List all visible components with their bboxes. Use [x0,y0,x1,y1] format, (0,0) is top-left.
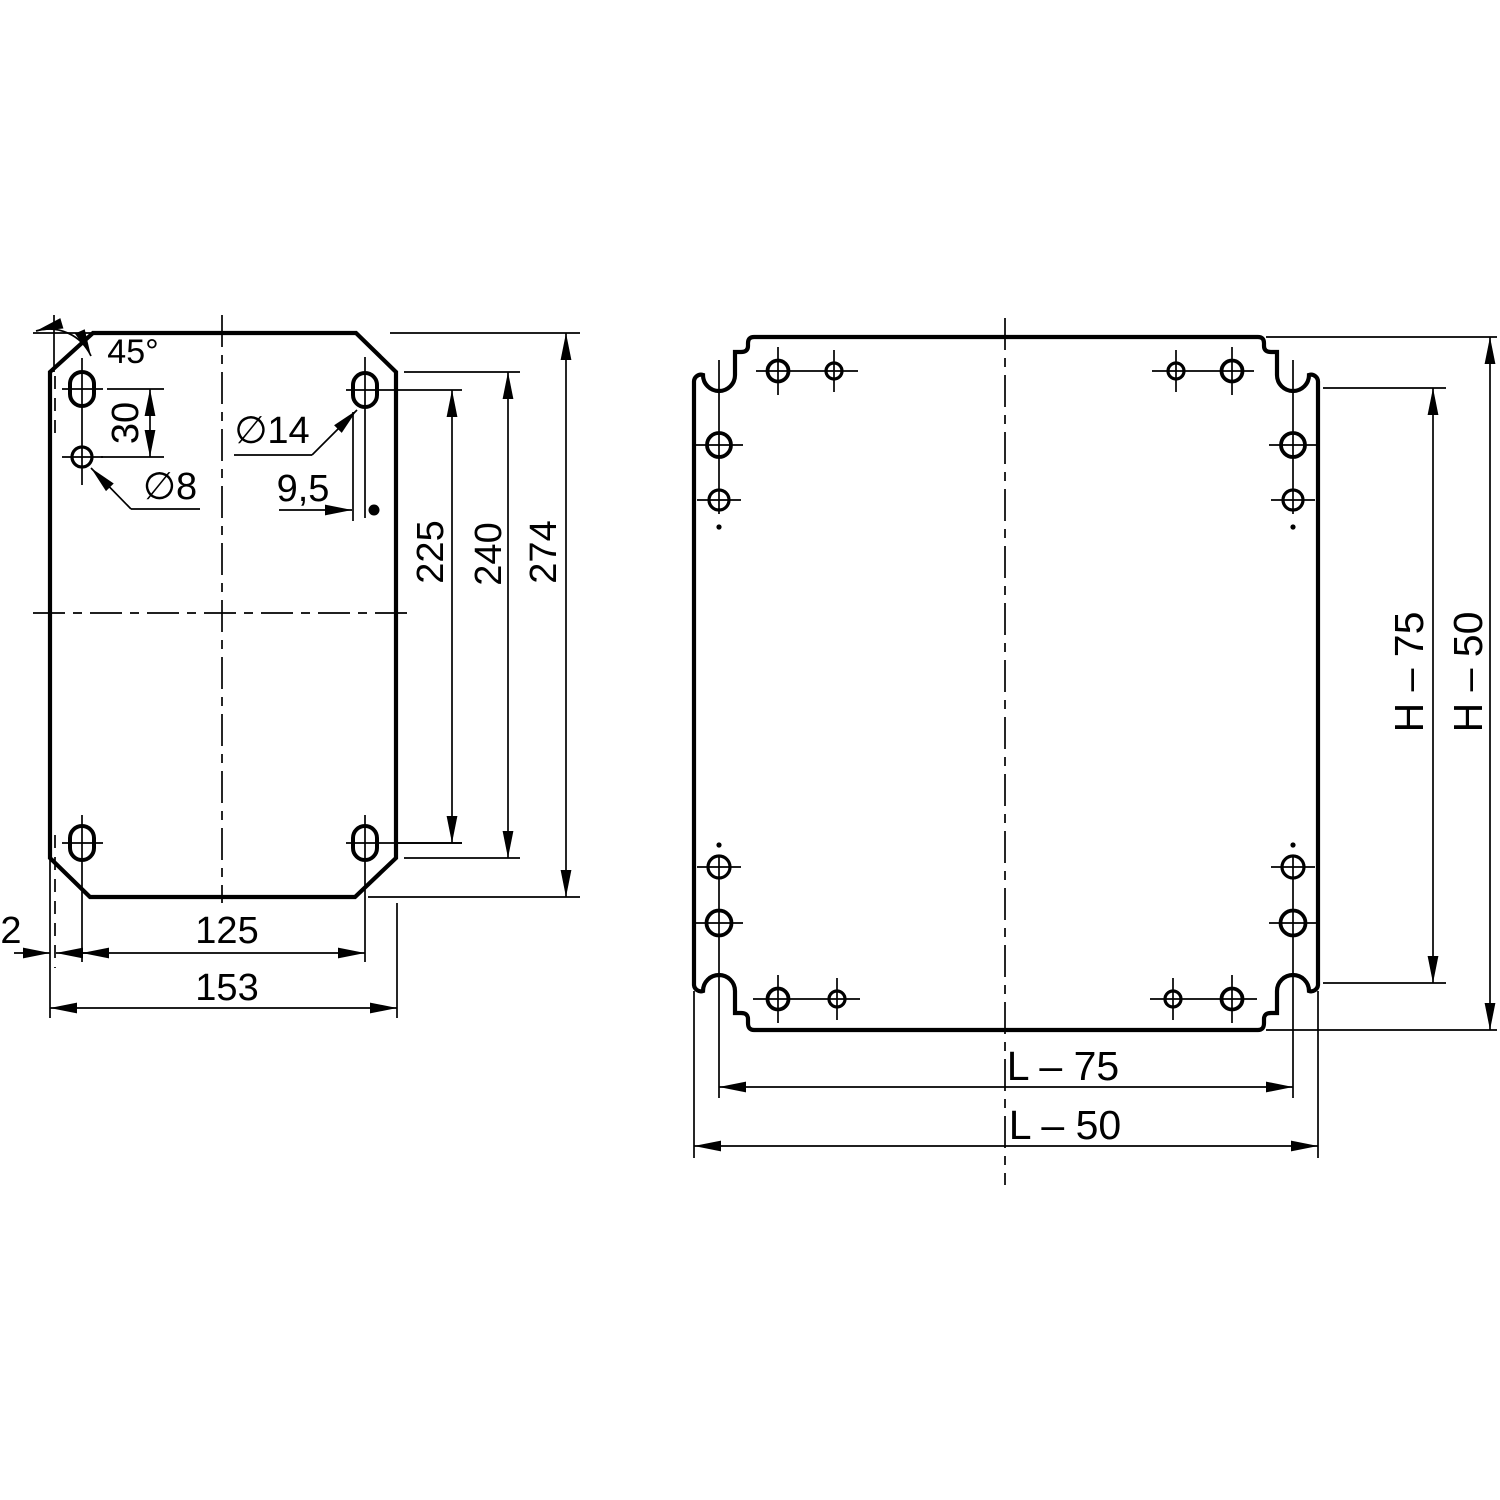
right-plate-view: H – 75 H – 50 L – 75 L – 50 [694,318,1497,1185]
dim-274-label: 274 [523,520,565,583]
keyhole-centerlines [719,360,1293,1098]
left-plate-outline [50,333,396,897]
leader-d8: ∅8 [91,466,200,509]
corner-axis-holes [707,433,1306,936]
dim-h50-label: H – 50 [1445,612,1491,733]
dim-bottom-stack: 2 125 153 [0,835,397,1018]
dim-h50: H – 50 [1266,337,1497,1030]
dim-9-5-label: 9,5 [277,468,330,510]
dim-l75: L – 75 [719,1043,1293,1089]
dim-153-label: 153 [195,967,258,1009]
dim-l50-label: L – 50 [1009,1102,1121,1148]
dim-right-stack: 225 240 274 [368,333,580,897]
leader-d14: ∅14 [234,410,357,455]
dim-h75-label: H – 75 [1386,612,1432,733]
dim-125-label: 125 [195,910,258,952]
centerline-dot [1290,842,1295,847]
drawing-page: 45° 30 ∅8 ∅14 9,5 [0,0,1500,1500]
dim-l75-label: L – 75 [1007,1043,1119,1089]
dim-30-label: 30 [105,402,147,444]
d14-label: ∅14 [234,410,309,452]
centerline-dot [716,524,721,529]
d8-label: ∅8 [143,466,197,508]
dim-240-label: 240 [468,522,510,585]
left-plate-view: 45° 30 ∅8 ∅14 9,5 [0,315,580,1018]
dim-225-label: 225 [410,520,452,583]
centerline-dot [716,842,721,847]
mounting-plate-technical-drawing: 45° 30 ∅8 ∅14 9,5 [0,0,1500,1500]
right-plate-outline [694,337,1318,1030]
dim-30: 30 [101,389,164,457]
centerline-dot [1290,524,1295,529]
angle-label: 45° [107,333,158,371]
corner-axis-hole-crosses [695,445,1317,923]
dim-2-label: 2 [0,910,21,952]
dim-h75: H – 75 [1323,388,1446,983]
dim-9-5-point [369,505,380,516]
